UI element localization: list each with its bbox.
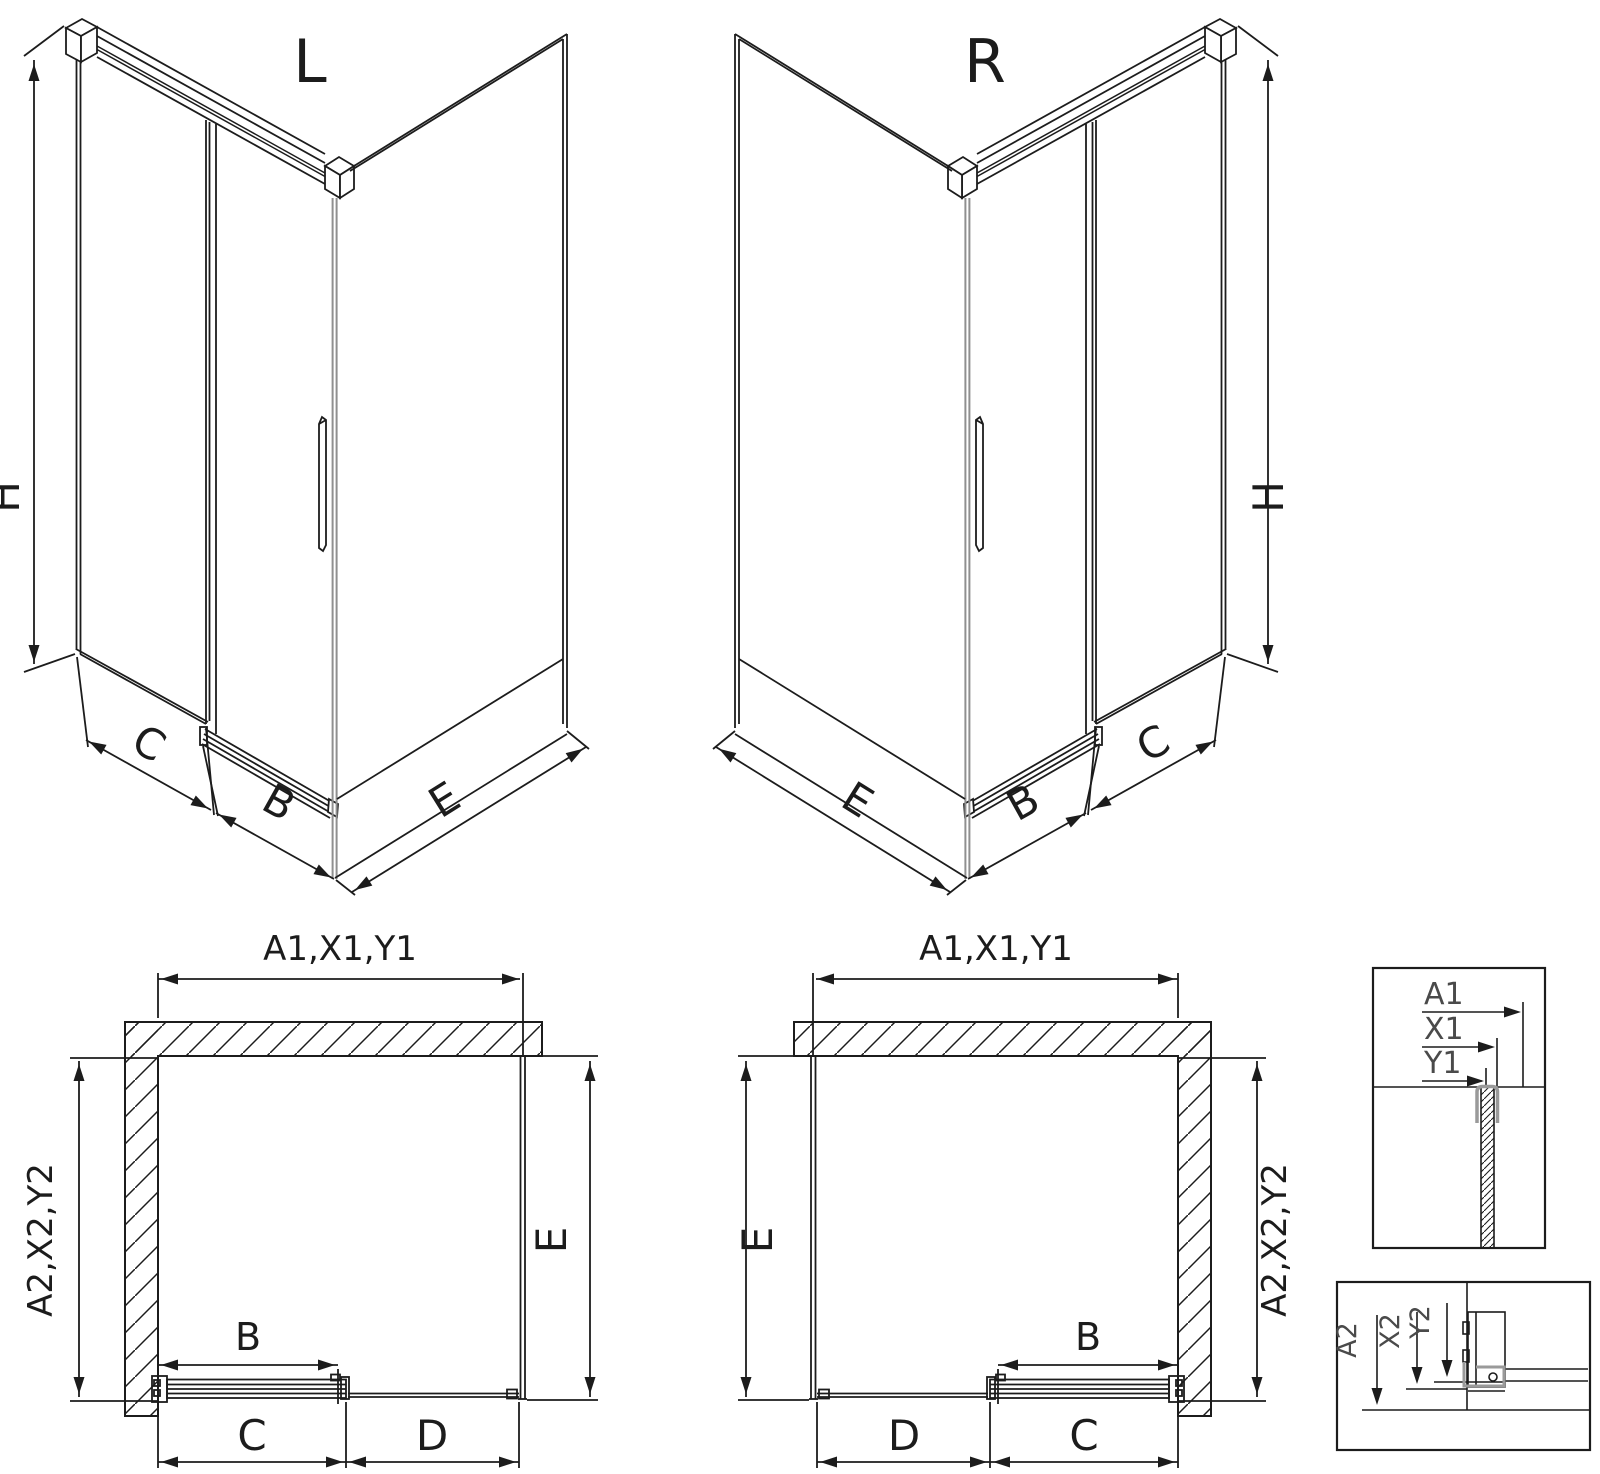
detail-top-label-y1: Y1 <box>1423 1046 1461 1081</box>
plan-r-dim-door: B <box>1075 1315 1101 1359</box>
technical-drawing-page: L H C B E R H C B E A1,X1,Y1 A2,X2,Y2 E … <box>0 0 1600 1474</box>
view-title-left: L <box>293 27 327 97</box>
plan-l-dim-depth-wall: A2,X2,Y2 <box>21 1163 61 1317</box>
dim-label-height-l: H <box>0 481 29 513</box>
plan-l-dim-c: C <box>237 1411 266 1460</box>
plan-r-dim-depth-wall: A2,X2,Y2 <box>1255 1163 1295 1317</box>
detail-bottom-label-x2: X2 <box>1375 1313 1406 1349</box>
detail-top-label-x1: X1 <box>1424 1012 1464 1047</box>
detail-bottom-roller: A2 X2 Y2 <box>1332 1282 1590 1450</box>
detail-top-profile: A1 X1 Y1 <box>1373 968 1545 1248</box>
plan-l-dim-width: A1,X1,Y1 <box>263 929 417 969</box>
iso-view-right: R H C B E <box>713 19 1293 895</box>
plan-l-dim-d: D <box>416 1411 448 1460</box>
dim-label-side-l: C <box>124 715 173 772</box>
plan-view-left: A1,X1,Y1 A2,X2,Y2 E B C D <box>21 929 598 1468</box>
wall-hatch-top-left-plan <box>125 1022 542 1056</box>
dim-label-side-r: C <box>1128 715 1177 772</box>
plan-r-dim-d: D <box>888 1411 920 1460</box>
detail-bottom-label-y2: Y2 <box>1405 1305 1436 1340</box>
wall-hatch-side-right-plan <box>1178 1022 1211 1416</box>
iso-view-left: L H C B E <box>0 19 589 895</box>
wall-hatch-top-right-plan <box>794 1022 1211 1056</box>
plan-r-dim-depth-open: E <box>733 1227 782 1254</box>
roller-wheel <box>1489 1373 1497 1381</box>
plan-l-dim-depth-open: E <box>527 1227 576 1254</box>
dim-label-height-r: H <box>1244 481 1293 513</box>
plan-r-dim-width: A1,X1,Y1 <box>919 929 1073 969</box>
wall-hatch-side-left-plan <box>125 1022 158 1416</box>
diagram-canvas: L H C B E R H C B E A1,X1,Y1 A2,X2,Y2 E … <box>0 0 1600 1474</box>
view-title-right: R <box>964 27 1006 97</box>
plan-r-dim-c: C <box>1069 1411 1098 1460</box>
plan-l-dim-door: B <box>235 1315 261 1359</box>
detail-bottom-label-a2: A2 <box>1332 1322 1363 1358</box>
detail-top-label-a1: A1 <box>1424 977 1464 1012</box>
plan-view-right: A1,X1,Y1 A2,X2,Y2 E B D C <box>733 929 1295 1468</box>
